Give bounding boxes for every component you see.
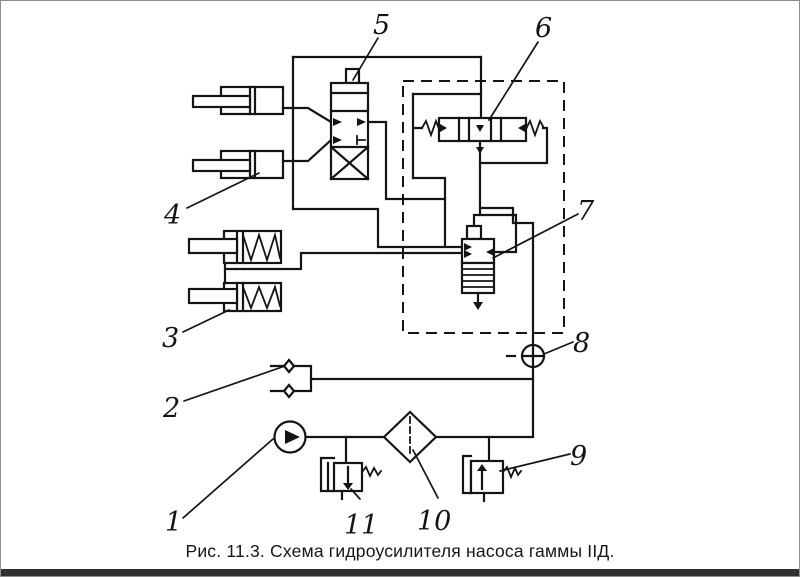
part-label-11: 11 xyxy=(344,510,378,541)
valve-bracket xyxy=(463,456,471,493)
figure-caption: Рис. 11.3. Схема гидроусилителя насоса г… xyxy=(1,541,799,562)
part-label-8: 8 xyxy=(573,328,590,359)
check-diamond xyxy=(284,385,294,397)
figure-page: 1 2 3 4 5 6 7 8 9 10 11 Рис. 11.3. Схема… xyxy=(0,0,800,577)
flow-arrow-down xyxy=(476,147,484,154)
part-label-9: 9 xyxy=(570,441,587,472)
piston-rod xyxy=(189,289,237,303)
valve-body-lower xyxy=(462,263,494,293)
hydraulic-cylinder-top xyxy=(193,87,331,122)
check-fittings-2 xyxy=(271,360,311,397)
spool-valve-6 xyxy=(422,118,544,154)
pipe-valve6-left-feed xyxy=(413,94,422,178)
part-label-4: 4 xyxy=(163,200,181,231)
bottom-window-edge xyxy=(1,569,799,576)
orifice-gauge-8 xyxy=(507,345,544,367)
valve-body xyxy=(471,461,503,493)
spring xyxy=(362,467,381,476)
relief-valve-9 xyxy=(463,456,521,501)
spring-right xyxy=(526,121,544,135)
cylinder-port-line xyxy=(283,140,331,161)
leader-line-3 xyxy=(183,310,229,332)
spring-cylinder-upper xyxy=(189,231,281,263)
valve-body xyxy=(439,118,526,141)
cylinder-port-line xyxy=(283,108,331,122)
piston-rod xyxy=(193,160,250,171)
pipe-valve5-right xyxy=(368,122,445,199)
leader-line-1 xyxy=(183,439,273,518)
drain-arrow xyxy=(473,302,483,310)
hydraulic-schematic: 1 2 3 4 5 6 7 8 9 10 11 xyxy=(1,1,800,577)
leader-line-5 xyxy=(353,38,378,80)
pipe-step-down xyxy=(413,178,445,247)
part-label-1: 1 xyxy=(165,507,182,538)
part-label-2: 2 xyxy=(162,393,180,424)
part-label-5: 5 xyxy=(373,10,390,41)
pressure-valve-7 xyxy=(462,226,494,310)
valve-stub xyxy=(346,69,359,83)
part-label-3: 3 xyxy=(162,323,179,354)
valve-stub xyxy=(467,226,481,239)
leader-line-10 xyxy=(413,450,438,498)
relief-valve-11 xyxy=(321,458,381,499)
spring-left xyxy=(422,121,439,135)
spring-cylinder-lower xyxy=(189,263,281,311)
piston-rod xyxy=(193,96,250,107)
leader-line-8 xyxy=(544,342,573,354)
part-label-7: 7 xyxy=(577,196,595,227)
part-label-6: 6 xyxy=(535,13,552,44)
part-label-10: 10 xyxy=(417,506,451,537)
valve-body xyxy=(331,83,368,179)
leader-line-2 xyxy=(184,366,285,401)
pipe-mid-rail-upper xyxy=(293,209,462,247)
pump-1 xyxy=(275,422,306,453)
leader-line-7 xyxy=(493,214,578,258)
hydraulic-cylinder-bottom xyxy=(193,140,331,178)
leader-line-9 xyxy=(500,454,570,471)
filter-10 xyxy=(384,412,436,462)
piston-rod xyxy=(189,239,237,253)
directional-valve-5 xyxy=(331,69,368,179)
pipe-valve7-top xyxy=(474,215,516,226)
